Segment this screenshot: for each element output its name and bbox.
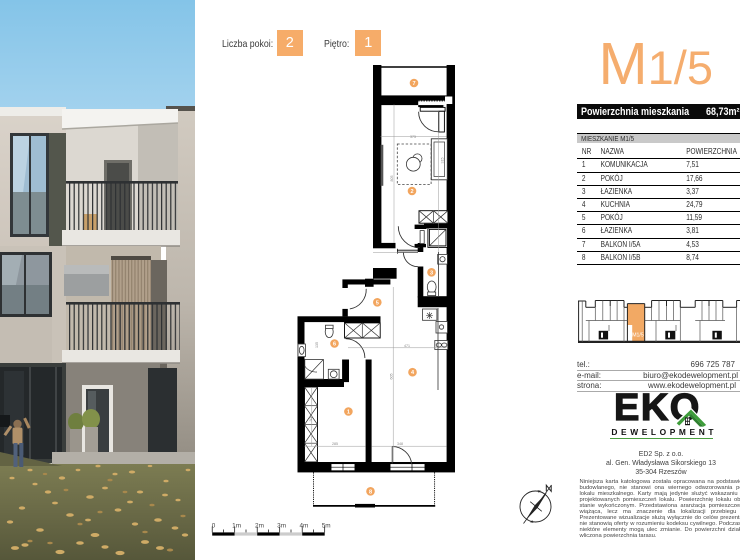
svg-text:285: 285 [332,442,338,446]
svg-text:5m: 5m [322,523,331,530]
svg-text:8: 8 [369,489,372,495]
svg-text:2: 2 [410,189,413,195]
svg-text:M1/5: M1/5 [632,333,644,339]
svg-text:3: 3 [430,270,433,276]
svg-text:471: 471 [404,344,410,348]
svg-text:3m: 3m [277,523,286,530]
svg-text:4m: 4m [299,523,308,530]
svg-text:805: 805 [390,176,394,182]
svg-text:1: 1 [347,410,350,416]
svg-text:7: 7 [412,81,415,87]
svg-text:5: 5 [376,300,379,306]
svg-text:0: 0 [212,523,216,530]
svg-text:308: 308 [309,416,313,422]
svg-text:135: 135 [315,342,319,348]
svg-text:348: 348 [397,442,403,446]
svg-text:6: 6 [333,342,336,348]
svg-text:1m: 1m [232,523,241,530]
svg-text:315: 315 [441,158,445,164]
svg-text:375: 375 [410,135,416,139]
svg-text:605: 605 [390,374,394,380]
svg-text:2m: 2m [255,523,264,530]
